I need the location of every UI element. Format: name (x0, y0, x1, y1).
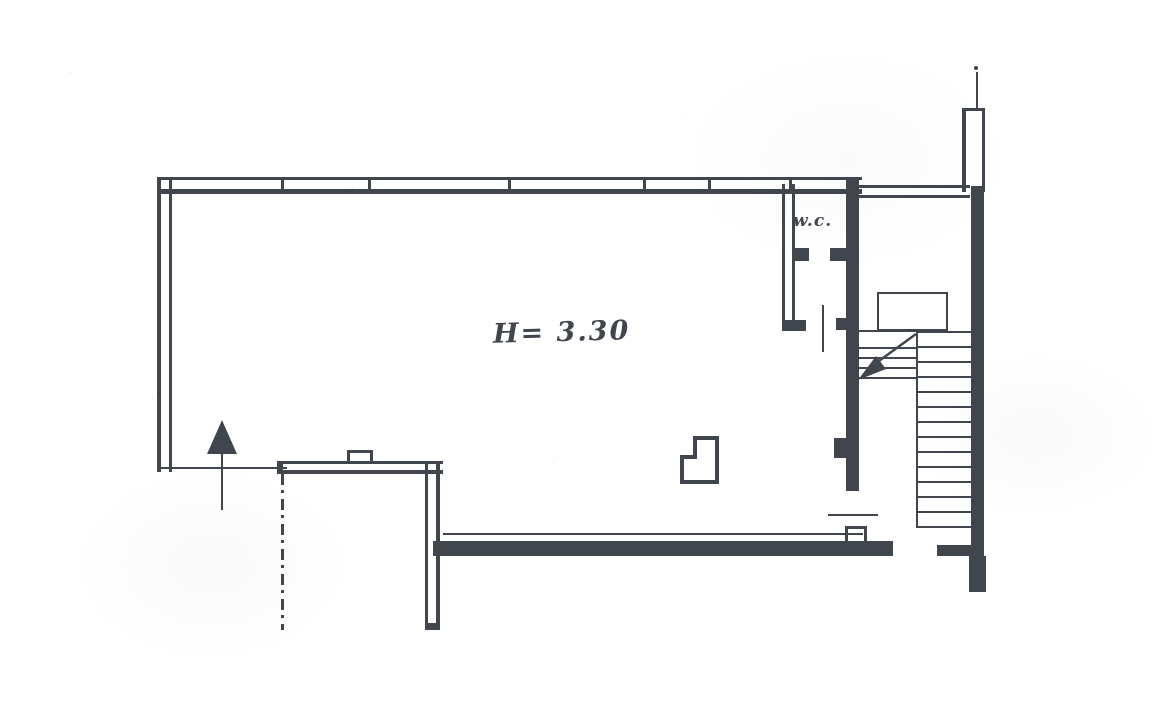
wc-label: w.c. (793, 211, 832, 231)
plan-annotations (0, 0, 1176, 724)
floor-plan: H= 3.30 w.c. (0, 0, 1176, 724)
column-outline (682, 438, 717, 482)
room-height-label: H= 3.30 (493, 315, 631, 350)
